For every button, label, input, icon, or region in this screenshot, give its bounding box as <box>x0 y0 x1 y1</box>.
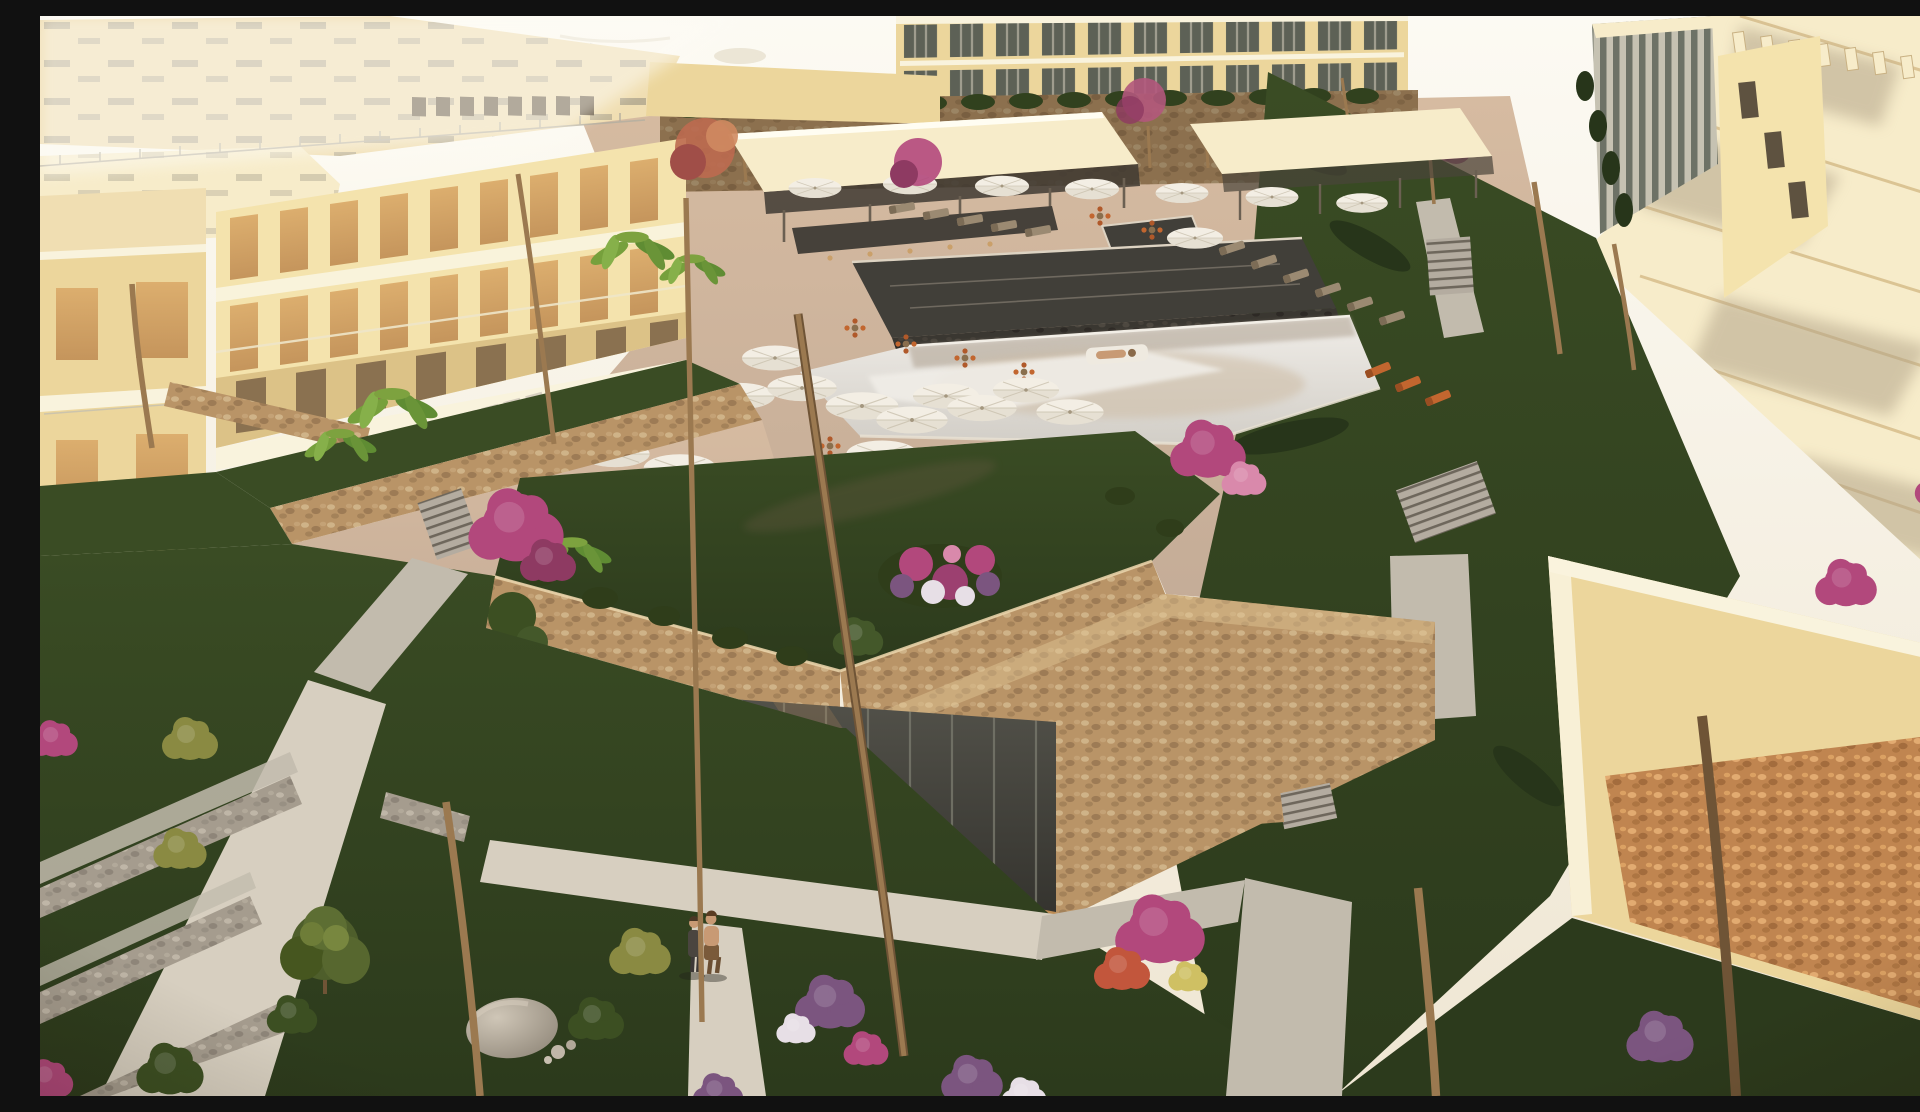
vignette-overlay <box>40 16 1920 1096</box>
rendering-canvas <box>40 16 1920 1096</box>
resort-aerial-rendering: Aerial sunset rendering of a beachfront … <box>40 16 1920 1096</box>
